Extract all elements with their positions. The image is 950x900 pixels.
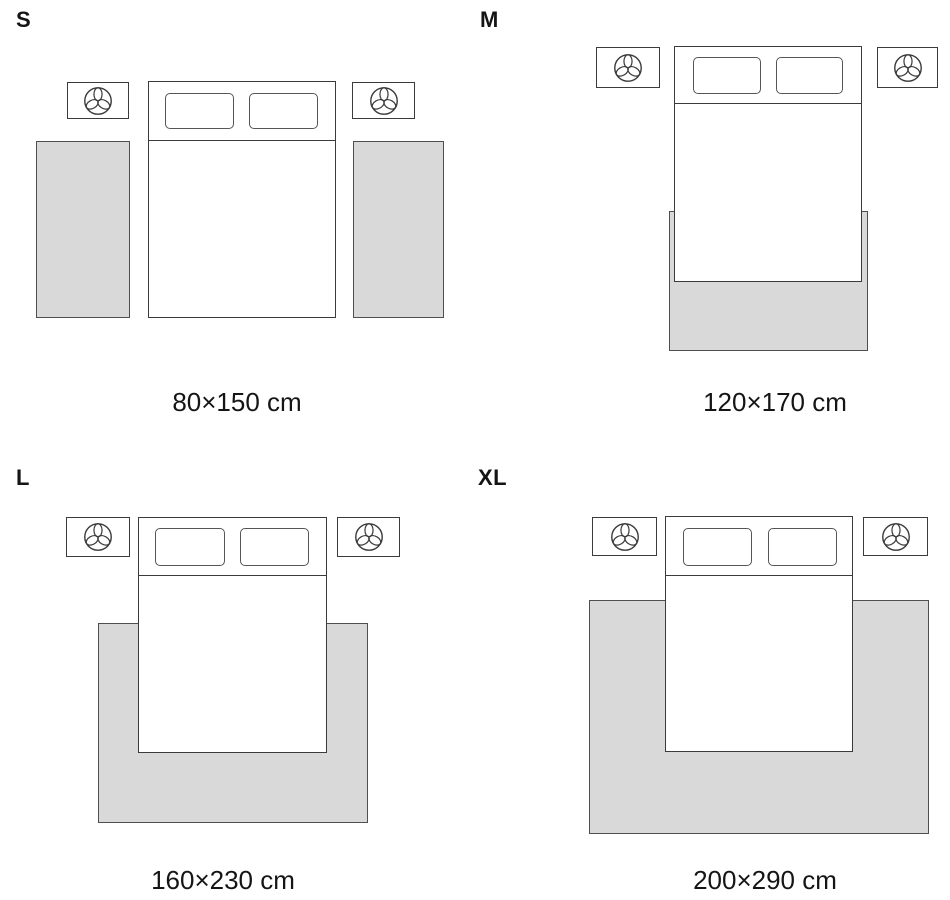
size-caption: 80×150 cm: [87, 388, 387, 418]
pillow-right: [240, 528, 309, 566]
nightstand-left: [596, 47, 660, 88]
bed: [148, 81, 336, 318]
size-label: M: [480, 8, 499, 32]
panel-s: S: [0, 0, 475, 450]
plant-icon: [352, 520, 386, 554]
plant-icon: [879, 520, 913, 554]
nightstand-right: [863, 517, 928, 556]
plant-icon: [611, 51, 645, 85]
size-caption: 120×170 cm: [625, 388, 925, 418]
size-label: S: [16, 8, 31, 32]
panel-l: L: [0, 450, 475, 900]
nightstand-left: [592, 517, 657, 556]
pillow-right: [249, 93, 318, 129]
size-label: XL: [478, 466, 507, 490]
nightstand-left: [66, 517, 130, 557]
rug-left: [36, 141, 130, 318]
nightstand-left: [67, 82, 129, 119]
panel-m: M: [475, 0, 950, 450]
nightstand-right: [337, 517, 400, 557]
pillow-left: [165, 93, 234, 129]
pillow-right: [776, 57, 843, 94]
rug-size-guide: S: [0, 0, 950, 900]
size-label: L: [16, 466, 30, 490]
bed: [138, 517, 327, 753]
plant-icon: [81, 84, 115, 118]
pillow-left: [155, 528, 225, 566]
plant-icon: [367, 84, 401, 118]
pillow-left: [683, 528, 752, 566]
size-caption: 200×290 cm: [615, 866, 915, 896]
pillow-right: [768, 528, 837, 566]
pillow-left: [693, 57, 761, 94]
plant-icon: [608, 520, 642, 554]
size-caption: 160×230 cm: [73, 866, 373, 896]
nightstand-right: [352, 82, 415, 119]
plant-icon: [891, 51, 925, 85]
bed: [674, 46, 862, 282]
nightstand-right: [877, 47, 938, 88]
bed: [665, 516, 853, 752]
plant-icon: [81, 520, 115, 554]
rug-right: [353, 141, 444, 318]
panel-xl: XL: [475, 450, 950, 900]
